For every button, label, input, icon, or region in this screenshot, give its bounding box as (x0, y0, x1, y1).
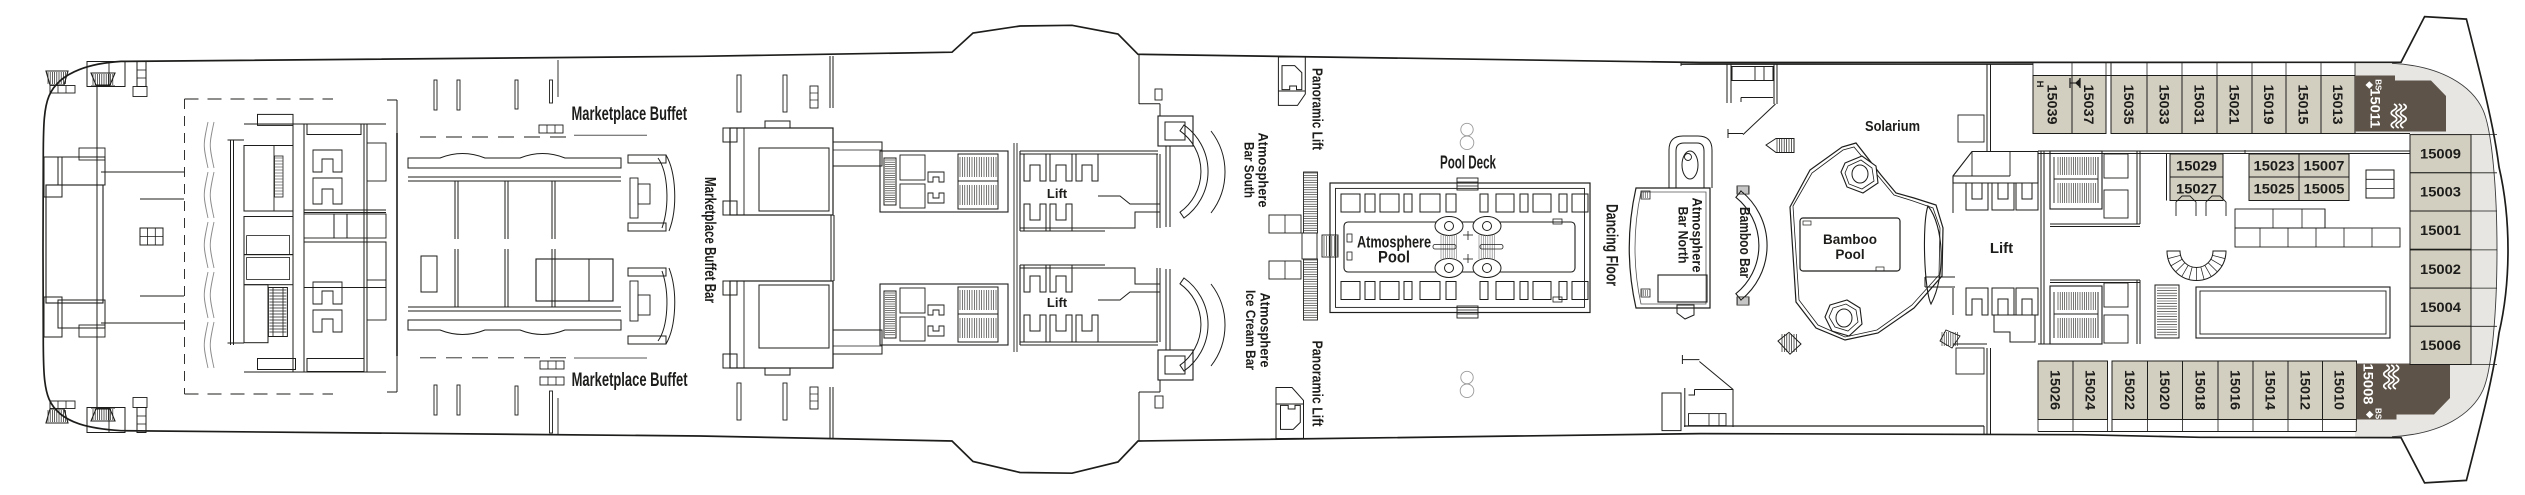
svg-text:BS: BS (2374, 408, 2383, 420)
svg-text:15022: 15022 (2122, 370, 2137, 410)
svg-text:Panoramic Lift: Panoramic Lift (1309, 341, 1325, 427)
svg-text:15006: 15006 (2420, 337, 2461, 353)
svg-text:Pool: Pool (1378, 248, 1410, 267)
svg-text:15010: 15010 (2332, 370, 2347, 410)
svg-text:15005: 15005 (2304, 182, 2346, 197)
svg-text:15025: 15025 (2254, 182, 2296, 197)
svg-text:15035: 15035 (2121, 85, 2136, 126)
svg-text:Pool: Pool (1835, 247, 1864, 262)
svg-text:Atmosphere: Atmosphere (1690, 198, 1705, 273)
svg-text:15016: 15016 (2228, 370, 2243, 411)
svg-text:15008: 15008 (2361, 364, 2376, 406)
svg-text:15037: 15037 (2081, 85, 2096, 125)
svg-text:15023: 15023 (2254, 158, 2296, 173)
svg-text:15027: 15027 (2176, 182, 2217, 197)
svg-text:Panoramic Lift: Panoramic Lift (1309, 68, 1325, 150)
svg-text:Lift: Lift (1990, 240, 2013, 257)
svg-text:Lift: Lift (1047, 186, 1068, 201)
svg-text:15001: 15001 (2420, 222, 2461, 238)
svg-text:15015: 15015 (2296, 85, 2311, 126)
svg-text:Solarium: Solarium (1865, 118, 1920, 135)
svg-text:15013: 15013 (2330, 85, 2345, 126)
svg-text:Pool Deck: Pool Deck (1440, 153, 1497, 173)
svg-text:15007: 15007 (2304, 158, 2345, 173)
svg-text:15026: 15026 (2048, 370, 2063, 411)
svg-text:15004: 15004 (2420, 299, 2461, 315)
svg-text:Marketplace Buffet: Marketplace Buffet (572, 104, 688, 125)
svg-text:Atmosphere: Atmosphere (1256, 133, 1271, 208)
svg-text:15002: 15002 (2420, 261, 2461, 277)
svg-text:15033: 15033 (2157, 85, 2172, 126)
svg-text:Bar South: Bar South (1242, 142, 1257, 198)
svg-text:15003: 15003 (2420, 184, 2461, 200)
svg-text:15009: 15009 (2420, 146, 2461, 162)
svg-text:Bamboo Bar: Bamboo Bar (1736, 207, 1753, 278)
svg-text:15024: 15024 (2082, 370, 2097, 411)
svg-text:Bar North: Bar North (1676, 207, 1691, 264)
svg-text:Dancing Floor: Dancing Floor (1603, 204, 1621, 286)
svg-text:Ice Cream Bar: Ice Cream Bar (1243, 290, 1258, 371)
svg-text:15020: 15020 (2157, 370, 2172, 410)
svg-text:15021: 15021 (2227, 85, 2242, 126)
svg-text:15012: 15012 (2297, 370, 2312, 410)
svg-text:Atmosphere: Atmosphere (1258, 293, 1273, 368)
svg-text:15019: 15019 (2261, 85, 2276, 125)
svg-text:15029: 15029 (2176, 158, 2217, 173)
svg-text:Bamboo: Bamboo (1823, 232, 1877, 247)
svg-text:15014: 15014 (2263, 370, 2278, 411)
svg-text:BS: BS (2374, 79, 2383, 91)
svg-text:15011: 15011 (2368, 88, 2383, 129)
svg-text:15031: 15031 (2192, 85, 2207, 126)
svg-text:15039: 15039 (2045, 85, 2060, 125)
svg-text:Lift: Lift (1047, 295, 1068, 310)
svg-text:15018: 15018 (2192, 370, 2207, 411)
svg-text:Marketplace Buffet Bar: Marketplace Buffet Bar (701, 177, 718, 303)
svg-text:H: H (2034, 81, 2045, 88)
svg-text:Marketplace Buffet: Marketplace Buffet (572, 370, 688, 391)
